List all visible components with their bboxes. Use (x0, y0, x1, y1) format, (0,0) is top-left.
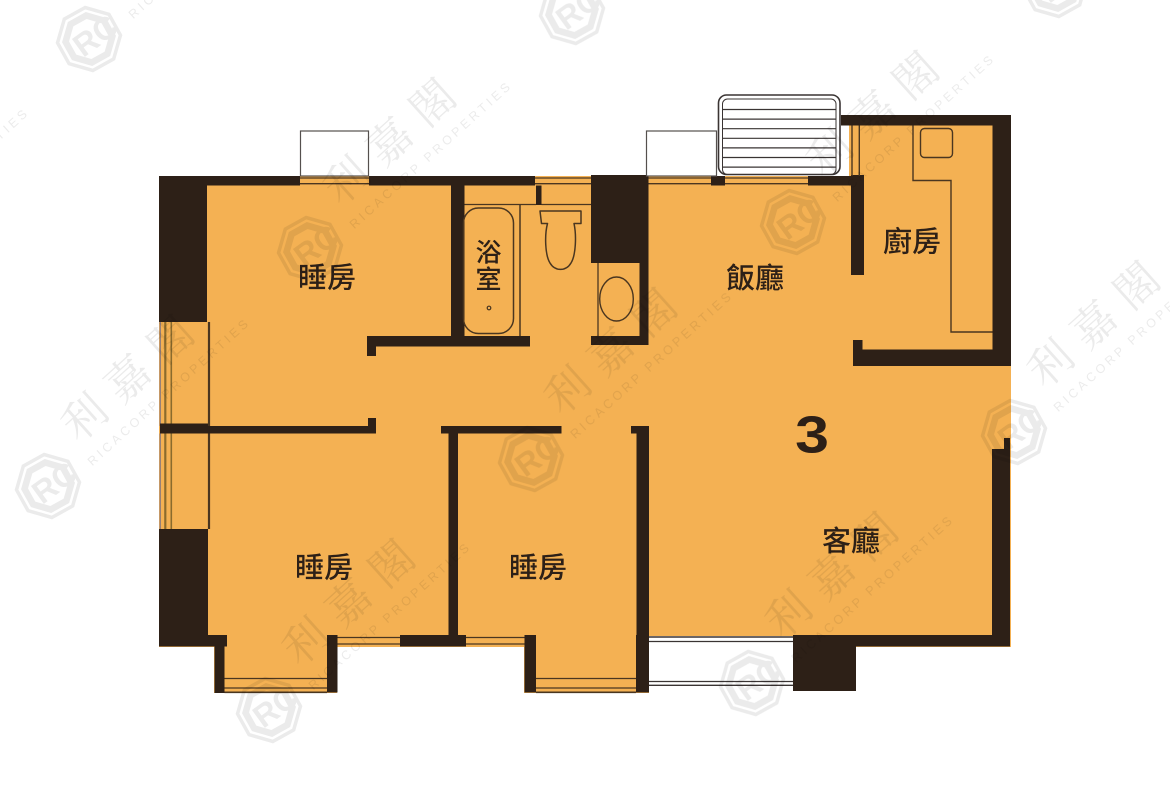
svg-text:3: 3 (795, 406, 829, 464)
